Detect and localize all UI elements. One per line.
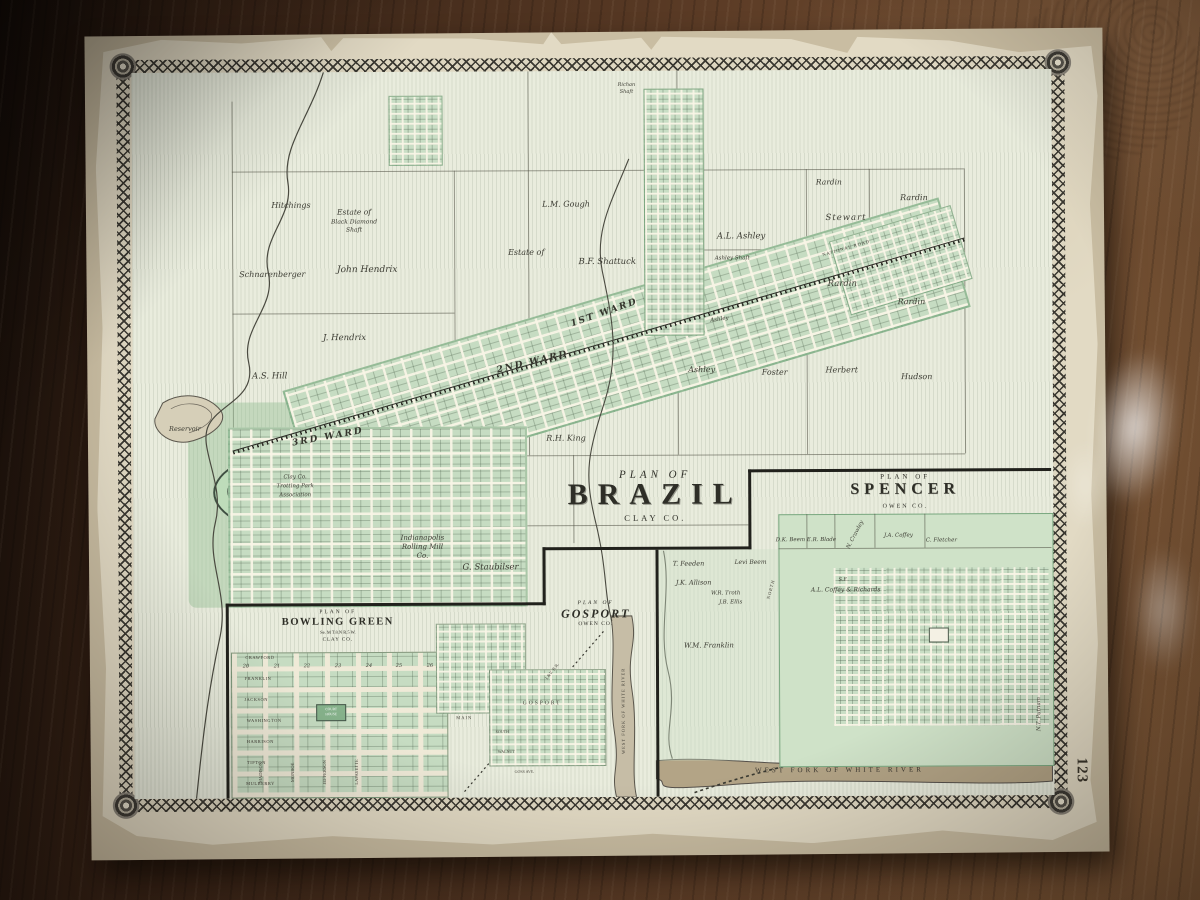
parcel-label: Ashley	[688, 365, 715, 374]
owner-label: J.A. Coffey	[884, 533, 913, 539]
bg-block-number: 22	[304, 663, 310, 669]
parcel-label: Estate of	[508, 248, 544, 257]
parcel-label: Herbert	[825, 365, 857, 374]
river-label: WEST FORK OF WHITE RIVER	[755, 766, 924, 775]
parcel-label: R.H. King	[546, 434, 585, 443]
feature-label: Shaft	[620, 89, 634, 95]
spencer-courthouse-square	[929, 627, 949, 642]
photo-scene: 123	[0, 0, 1200, 900]
parcel-label: Rardin	[816, 177, 842, 186]
bg-street-label: JACKSON	[244, 697, 268, 702]
feature-label: Richan	[618, 82, 636, 88]
bg-courthouse-block: COURT HOUSE	[316, 704, 346, 721]
owner-label: E.R. Blade	[807, 537, 836, 543]
gosport-town-label: GOSPORT	[523, 700, 562, 706]
parcel-label: Ashley Shaft	[715, 255, 750, 261]
owner-label: C. Fletcher	[926, 537, 957, 543]
feature-label: Trotting Park	[277, 483, 314, 489]
bg-street-label-v: MONROE	[290, 763, 295, 783]
bg-block-number: 26	[427, 663, 433, 669]
gosport-street-label: GOSS AVE.	[515, 769, 535, 774]
owner-label: J.B. Ellis	[719, 599, 742, 605]
bg-street-label-v: MADISON	[258, 762, 263, 783]
parcel-label: Rardin	[900, 193, 928, 202]
bg-block-number: 25	[396, 663, 402, 669]
spencer-title-small: PLAN OF	[880, 473, 930, 481]
feature-label: Indianapolis	[401, 534, 445, 542]
parcel-label: Shaft	[346, 227, 362, 234]
spencer-parcel-line	[874, 514, 875, 548]
gosport-title: GOSPORT	[561, 606, 630, 621]
page-number: 123	[1073, 758, 1090, 784]
owner-label: S.E.	[839, 577, 849, 583]
gosport-street-label: MAIN	[456, 715, 472, 720]
parcel-label: Rardin	[828, 279, 857, 289]
parcel-label: A.L. Ashley	[717, 231, 765, 241]
owner-label: A.L. Coffey & Richards	[811, 586, 881, 593]
spencer-title: SPENCER	[850, 480, 960, 498]
bg-street-label: TIPTON	[247, 760, 266, 765]
bg-street-label: CRAWFORD	[245, 655, 274, 660]
parcel-label: L.M. Gough	[542, 200, 590, 209]
bg-street-label: FRANKLIN	[245, 676, 272, 681]
border-band-left	[116, 60, 132, 812]
gosport-title-county: OWEN CO.	[578, 621, 613, 627]
parcel-label: J. Hendrix	[323, 333, 366, 343]
parcel-label: Hitchings	[271, 201, 310, 210]
bg-block-number: 21	[274, 663, 280, 669]
parcel-label: Estate of	[337, 207, 371, 216]
gosport-street-label: SOUTH	[496, 729, 509, 734]
parcel-label: G. Staubilser	[463, 562, 519, 572]
bg-street-label-v: JEFFERSON	[322, 760, 327, 784]
gosport-title-small: PLAN OF	[578, 600, 614, 606]
bg-street-label: HARRISON	[247, 739, 274, 744]
east-creek	[587, 159, 630, 621]
parcel-label: Hudson	[901, 372, 932, 381]
bg-block-number: 24	[366, 663, 372, 669]
parcel-label: Rardin	[898, 297, 926, 306]
brazil-title: BRAZIL	[568, 477, 743, 512]
feature-label: Reservoir	[169, 425, 201, 433]
bg-courthouse-label: HOUSE	[317, 712, 345, 717]
inset-boundary	[542, 547, 545, 605]
bg-street-label-v: LAFAYETTE	[354, 759, 359, 784]
owner-label: Levi Beem	[735, 559, 767, 566]
gosport-street-label: WALNUT	[498, 749, 515, 754]
feature-label: Clay Co.	[284, 474, 307, 480]
spencer-title-county: OWEN CO.	[883, 504, 928, 510]
gosport-river-label: WEST FORK OF WHITE RIVER	[620, 668, 625, 754]
inset-boundary	[748, 469, 751, 549]
feature-label: Association	[279, 492, 311, 498]
feature-label: Co.	[417, 552, 429, 560]
owner-label: W.M. Franklin	[684, 641, 734, 649]
parcel-label: John Hendrix	[337, 265, 398, 275]
owner-label: D.K. Beem	[776, 537, 805, 543]
owner-label: W.R. Troth	[711, 590, 740, 596]
parcel-label: B.F. Shattuck	[578, 257, 636, 267]
parcel-label: A.S. Hill	[252, 371, 287, 381]
bg-street-label: WASHINGTON	[247, 718, 282, 723]
bg-town-grid	[231, 652, 449, 799]
owner-label: J.K. Allison	[676, 579, 712, 587]
owner-label: N.T. Putnam	[1036, 697, 1042, 731]
parcel-label: Black Diamond	[331, 218, 377, 225]
brazil-title-county: CLAY CO.	[624, 513, 686, 523]
bg-title-county: CLAY CO.	[323, 638, 353, 643]
parcel-label: Foster	[762, 368, 788, 377]
bg-title-small: PLAN OF	[319, 609, 356, 615]
bg-title: BOWLING GREEN	[282, 616, 394, 627]
feature-label: Rolling Mill	[402, 543, 443, 551]
parcel-label: Schnarenberger	[239, 270, 305, 279]
parcel-label: Stewart	[825, 213, 866, 223]
atlas-page: 123	[91, 24, 1107, 856]
bg-block-number: 20	[243, 664, 249, 670]
map-area: Hitchings Estate of Black Diamond Shaft …	[131, 69, 1054, 799]
bg-title-township: Se. M T.8.N R.5 W.	[320, 630, 355, 635]
bg-block-number: 23	[335, 663, 341, 669]
owner-label: T. Feeden	[673, 560, 705, 568]
